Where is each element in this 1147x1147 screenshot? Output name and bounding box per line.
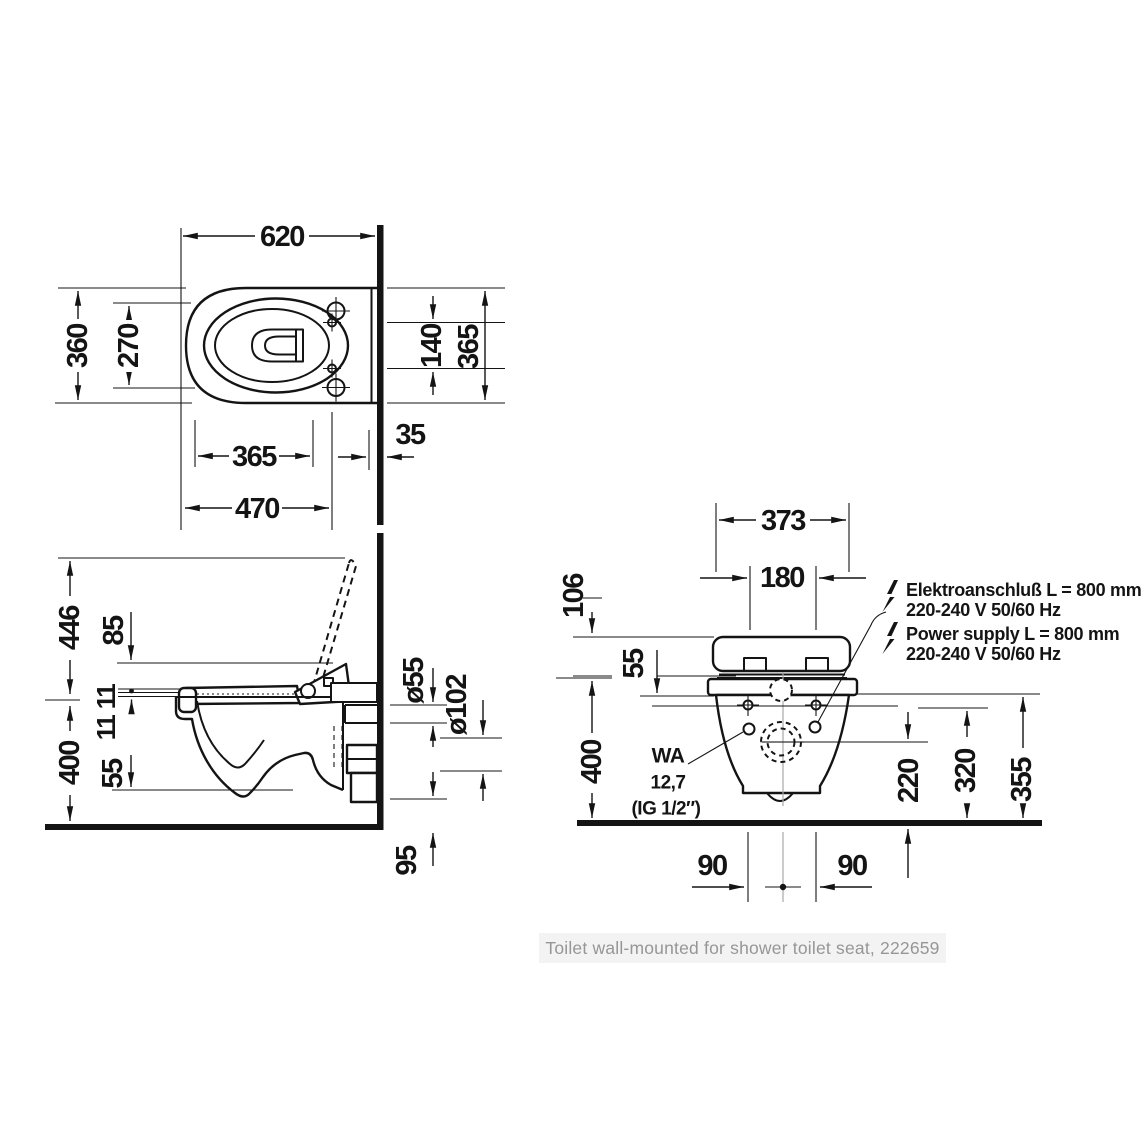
dim-11-lower-label: 11: [91, 715, 121, 741]
dim-dia102-label: ø102: [441, 675, 473, 735]
side-view-drawing: 446 400 85 11 11 55 ø55 ø102 95: [45, 533, 502, 876]
dim-55-side-label: 55: [97, 758, 129, 789]
dim-106-label: 106: [558, 573, 590, 618]
wall-section-top-view: [377, 225, 384, 525]
dim-400-front-label: 400: [576, 740, 608, 784]
dim-400-side-label: 400: [54, 741, 86, 785]
technical-drawing-svg: 620 360 270 140 365 35 365 470: [0, 0, 1147, 1147]
electro-en-line1: Power supply L = 800 mm: [906, 624, 1119, 644]
lightning-icon: [883, 580, 899, 612]
top-view-drawing: 620 360 270 140 365 35 365 470: [55, 221, 505, 530]
dim-373-label: 373: [761, 505, 806, 537]
dim-220-label: 220: [893, 759, 925, 803]
wa-thread: (IG 1/2″): [631, 799, 700, 820]
dim-365-bottom-label: 365: [232, 441, 277, 473]
open-lid-outline: [313, 560, 356, 688]
toilet-front: [652, 637, 898, 806]
wa-value: 12,7: [651, 773, 686, 794]
dim-55-front-label: 55: [618, 648, 650, 679]
dim-355-label: 355: [1006, 757, 1038, 802]
floor-section-front-view: [577, 820, 1042, 826]
lightning-icon: [883, 622, 899, 654]
dim-470-label: 470: [235, 493, 279, 525]
dim-360-label: 360: [62, 324, 94, 368]
wall-connections-side: [331, 683, 377, 802]
front-view-drawing: Elektroanschluß L = 800 mm 220-240 V 50/…: [556, 503, 1141, 902]
dim-dia55-label: ø55: [398, 657, 430, 704]
water-connection-point: [744, 724, 755, 735]
dim-90-left-label: 90: [697, 850, 727, 882]
dim-320-label: 320: [950, 749, 982, 793]
dim-620-label: 620: [260, 221, 304, 253]
dim-180-label: 180: [760, 562, 804, 594]
power-connection-point: [810, 722, 821, 733]
dim-140-label: 140: [416, 324, 448, 368]
dim-95-label: 95: [391, 845, 423, 876]
dim-85-label: 85: [98, 615, 130, 646]
wa-label: WA: [652, 745, 685, 768]
dim-446-label: 446: [54, 605, 86, 650]
caption-bar: Toilet wall-mounted for shower toilet se…: [539, 933, 946, 963]
electro-en-line2: 220-240 V 50/60 Hz: [906, 644, 1061, 664]
technical-drawing-page: 620 360 270 140 365 35 365 470: [0, 0, 1147, 1147]
dim-90-right-label: 90: [837, 850, 867, 882]
floor-section-side-view: [45, 824, 384, 830]
dim-270-label: 270: [113, 324, 145, 368]
electro-de-line1: Elektroanschluß L = 800 mm: [906, 580, 1141, 600]
caption-text: Toilet wall-mounted for shower toilet se…: [545, 938, 939, 959]
dim-11-upper-label: 11: [91, 684, 121, 710]
dim-365-right-label: 365: [453, 324, 485, 369]
dim-35-label: 35: [395, 419, 426, 451]
electro-de-line2: 220-240 V 50/60 Hz: [906, 600, 1061, 620]
